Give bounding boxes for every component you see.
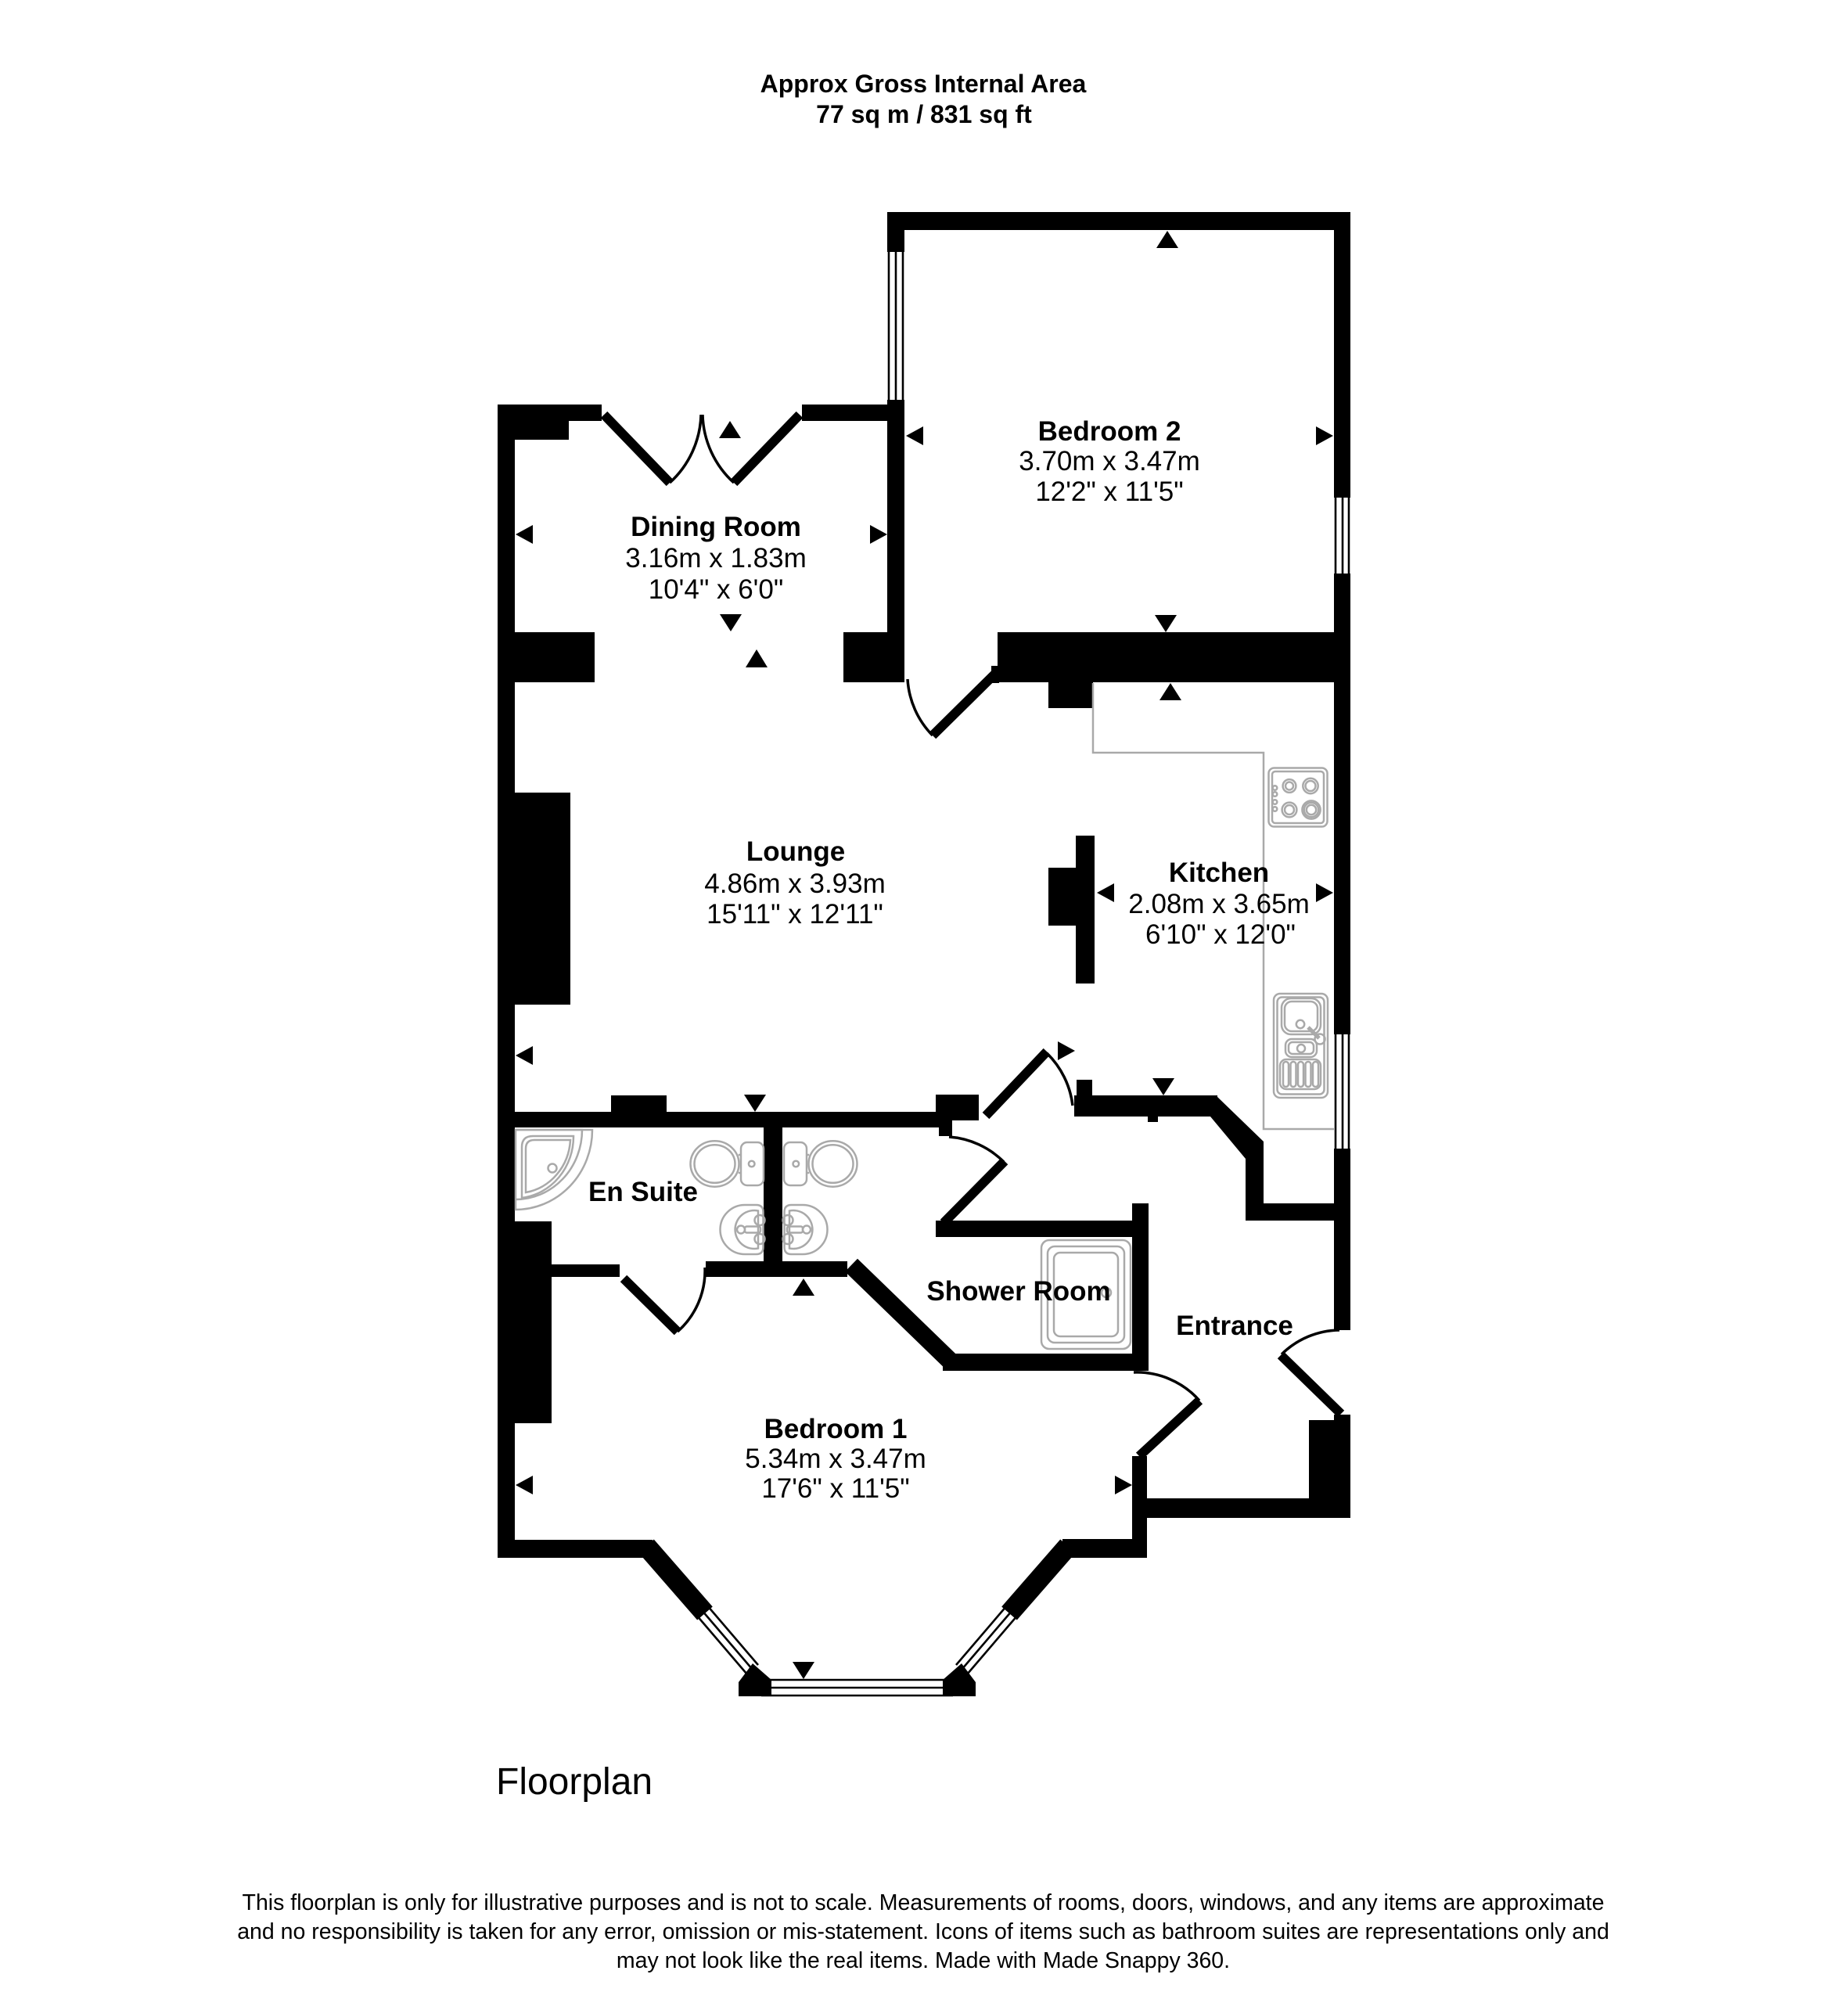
svg-text:Floorplan: Floorplan [496,1761,653,1803]
svg-text:12'2" x 11'5": 12'2" x 11'5" [1035,476,1183,507]
svg-text:may not look like the real ite: may not look like the real items. Made w… [617,1948,1230,1973]
svg-text:5.34m x 3.47m: 5.34m x 3.47m [745,1444,926,1474]
svg-text:6'10" x 12'0": 6'10" x 12'0" [1145,919,1296,950]
svg-text:Kitchen: Kitchen [1169,858,1269,888]
svg-text:Dining Room: Dining Room [631,512,801,542]
svg-text:4.86m x 3.93m: 4.86m x 3.93m [704,868,886,899]
svg-text:Entrance: Entrance [1176,1311,1293,1341]
svg-text:77 sq m / 831 sq ft: 77 sq m / 831 sq ft [816,100,1032,128]
svg-text:17'6" x 11'5": 17'6" x 11'5" [761,1473,909,1504]
svg-text:3.16m x 1.83m: 3.16m x 1.83m [625,543,807,574]
svg-text:3.70m x 3.47m: 3.70m x 3.47m [1019,446,1200,476]
svg-text:Shower Room: Shower Room [926,1276,1110,1307]
svg-text:Bedroom 2: Bedroom 2 [1038,416,1181,447]
svg-text:2.08m x 3.65m: 2.08m x 3.65m [1128,889,1310,919]
svg-text:Bedroom 1: Bedroom 1 [764,1414,908,1444]
svg-text:Approx Gross Internal Area: Approx Gross Internal Area [760,70,1087,98]
svg-text:Lounge: Lounge [746,836,845,867]
svg-text:This floorplan is only for ill: This floorplan is only for illustrative … [243,1890,1605,1915]
svg-text:En Suite: En Suite [588,1177,698,1207]
svg-text:10'4" x 6'0": 10'4" x 6'0" [649,574,784,605]
svg-text:15'11" x 12'11": 15'11" x 12'11" [706,899,883,930]
svg-text:and no responsibility is taken: and no responsibility is taken for any e… [237,1919,1609,1944]
